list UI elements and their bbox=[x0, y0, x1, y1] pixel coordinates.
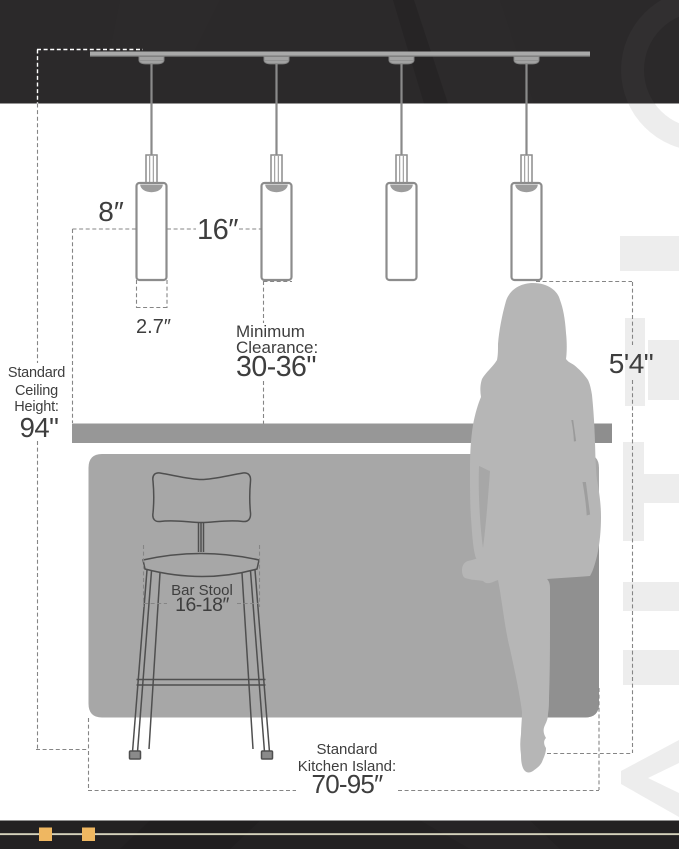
svg-text:8″: 8″ bbox=[98, 196, 124, 227]
svg-text:Standard: Standard bbox=[8, 365, 65, 381]
svg-text:70-95″: 70-95″ bbox=[312, 769, 383, 799]
svg-text:5'4": 5'4" bbox=[609, 348, 653, 379]
svg-text:2.7″: 2.7″ bbox=[136, 316, 171, 338]
svg-text:16-18″: 16-18″ bbox=[175, 594, 229, 616]
svg-text:Ceiling: Ceiling bbox=[15, 383, 58, 399]
svg-text:Standard: Standard bbox=[317, 741, 378, 758]
svg-text:16″: 16″ bbox=[197, 214, 238, 246]
svg-text:94": 94" bbox=[20, 412, 59, 443]
svg-text:30-36": 30-36" bbox=[236, 351, 316, 383]
